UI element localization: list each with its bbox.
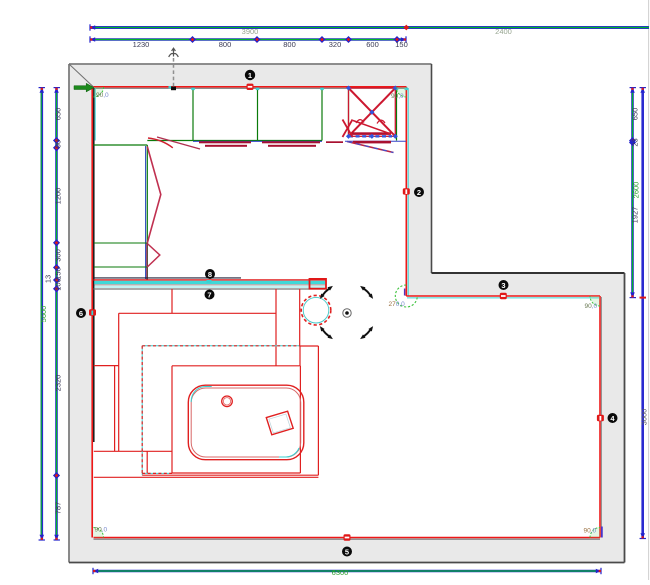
svg-text:6: 6 [79, 309, 83, 318]
svg-text:7: 7 [207, 290, 211, 299]
svg-text:90,0: 90,0 [584, 528, 597, 535]
svg-text:100: 100 [54, 278, 63, 291]
svg-text:1230: 1230 [133, 40, 150, 49]
svg-text:5: 5 [345, 547, 349, 556]
svg-text:600: 600 [366, 40, 379, 49]
svg-text:2600: 2600 [632, 182, 641, 199]
svg-text:2400: 2400 [495, 27, 512, 36]
svg-text:90,0: 90,0 [95, 527, 108, 534]
svg-text:650: 650 [54, 108, 63, 121]
svg-text:1: 1 [248, 71, 252, 80]
svg-text:300: 300 [54, 249, 63, 262]
svg-text:90,0: 90,0 [585, 303, 598, 310]
svg-text:2: 2 [417, 188, 421, 197]
svg-text:5600: 5600 [39, 306, 48, 323]
svg-text:787: 787 [54, 502, 63, 515]
svg-text:6300: 6300 [332, 568, 349, 577]
svg-text:1927: 1927 [631, 207, 640, 224]
svg-text:320: 320 [329, 40, 342, 49]
svg-text:1200: 1200 [54, 188, 63, 205]
svg-text:2320: 2320 [54, 375, 63, 392]
svg-text:3900: 3900 [242, 27, 259, 36]
svg-text:270,0: 270,0 [389, 301, 406, 308]
svg-text:150: 150 [395, 40, 408, 49]
svg-text:90,0: 90,0 [391, 93, 404, 100]
svg-text:13: 13 [44, 275, 53, 283]
svg-text:800: 800 [219, 40, 232, 49]
svg-text:150: 150 [54, 267, 63, 280]
svg-text:650: 650 [631, 108, 640, 121]
svg-text:90: 90 [54, 140, 63, 148]
svg-text:800: 800 [283, 40, 296, 49]
svg-text:23: 23 [631, 138, 640, 146]
svg-text:3000: 3000 [640, 409, 649, 426]
svg-text:3: 3 [501, 281, 505, 290]
svg-text:8: 8 [208, 270, 212, 279]
svg-text:90,0: 90,0 [96, 92, 109, 99]
